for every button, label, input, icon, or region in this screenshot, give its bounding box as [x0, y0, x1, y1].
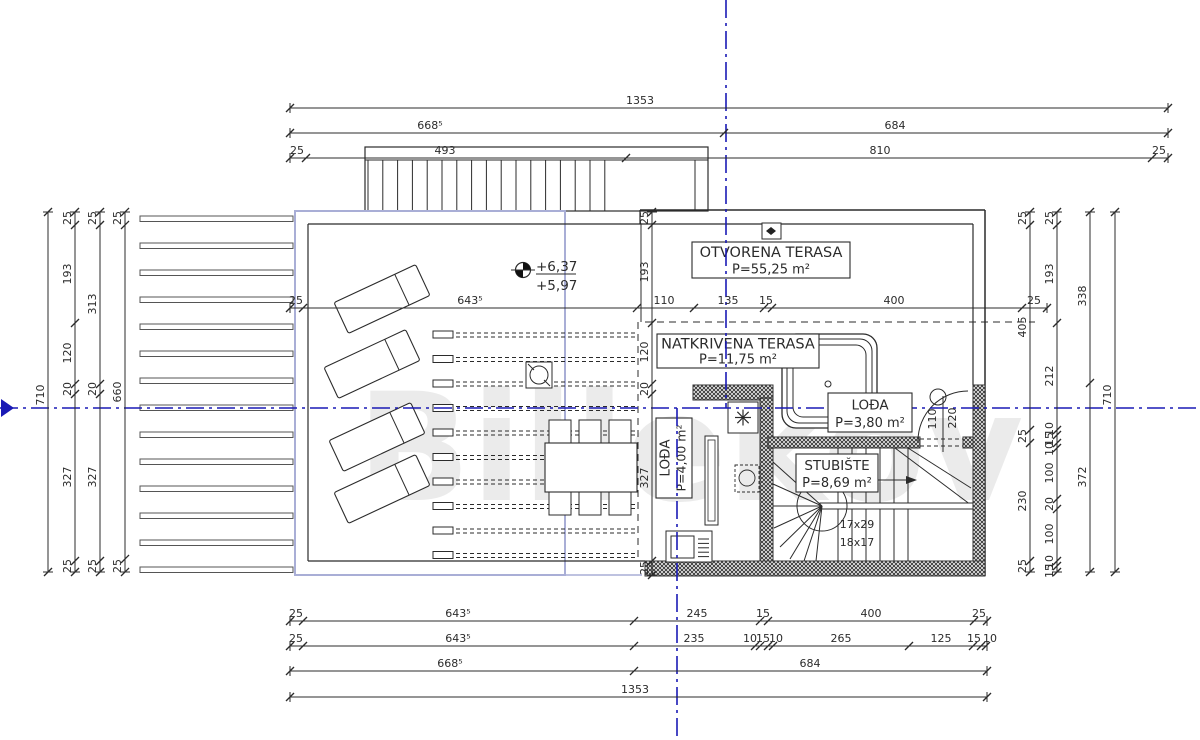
dim-label: 25: [972, 607, 986, 620]
wall-hatched: [760, 398, 773, 562]
wall-hatched: [963, 437, 973, 448]
dim-label: 193: [638, 262, 651, 283]
deck-row-cap: [433, 552, 453, 559]
dim-label: 10: [769, 632, 783, 645]
dim-label: 405: [1016, 317, 1029, 338]
chair: [609, 420, 631, 444]
dim-label: 338: [1076, 286, 1089, 307]
deck-bar: [140, 270, 293, 276]
dim-label: 25: [638, 211, 651, 225]
deck-row-cap: [433, 380, 453, 387]
dim-label: 212: [1043, 366, 1056, 387]
dim-label: 20: [1043, 497, 1056, 511]
dim-label: 15: [1043, 564, 1056, 578]
dim-label: 25: [289, 632, 303, 645]
deck-bar: [140, 513, 293, 519]
floor-plan-page: Billekov +6,37+5,97 OTVORENA TERASAP=55,…: [0, 0, 1200, 740]
dim-label: 660: [111, 382, 124, 403]
dim-label: 20: [86, 382, 99, 396]
dim-label: 25: [289, 607, 303, 620]
deck-bar: [140, 297, 293, 303]
dim-label: 230: [1016, 491, 1029, 512]
dim-label: 25: [111, 559, 124, 573]
room-name: OTVORENA TERASA: [700, 245, 843, 261]
dim-label: 400: [861, 607, 882, 620]
dim-label: 120: [638, 342, 651, 363]
deck-bar: [140, 486, 293, 492]
dim-label: 110: [654, 294, 675, 307]
dim-label: 313: [86, 294, 99, 315]
dim-label: 25: [111, 211, 124, 225]
dim-label: 643⁵: [445, 632, 470, 645]
dim-label: 810: [870, 144, 891, 157]
deck-bar: [140, 243, 293, 249]
dim-label: 235: [684, 632, 705, 645]
dim-label: 327: [638, 468, 651, 489]
stair-note: 18x17: [840, 536, 875, 549]
chair: [579, 491, 601, 515]
deck-bar: [140, 324, 293, 330]
dim-label: 20: [638, 382, 651, 396]
dim-label: 710: [1101, 385, 1114, 406]
dim-label: 125: [931, 632, 952, 645]
deck-bar: [140, 540, 293, 546]
dim-label: 15: [756, 607, 770, 620]
deck-bar: [140, 432, 293, 438]
chair: [609, 491, 631, 515]
dim-label: 493: [435, 144, 456, 157]
dim-label: 120: [61, 343, 74, 364]
chair: [579, 420, 601, 444]
chair: [549, 420, 571, 444]
stair-rail: [820, 503, 973, 509]
dim-label: 100: [1043, 524, 1056, 545]
deck-row-cap: [433, 331, 453, 338]
dim-label: 193: [1043, 264, 1056, 285]
dim-label: 25: [86, 211, 99, 225]
wall-hatched: [973, 385, 985, 561]
deck-bar: [140, 567, 293, 573]
dim-label: 1353: [626, 94, 654, 107]
room-name: STUBIŠTE: [804, 456, 869, 474]
dim-label: 15: [759, 294, 773, 307]
deck-bar: [140, 216, 293, 222]
dim-label: 668⁵: [417, 119, 442, 132]
lounger: [334, 265, 430, 334]
dim-label: 25: [1043, 211, 1056, 225]
dim-label: 220: [946, 408, 959, 429]
dim-label: 25: [1016, 559, 1029, 573]
deck-row-cap: [433, 503, 453, 510]
level-upper: +6,37: [536, 259, 577, 275]
dim-label: 110: [926, 409, 939, 430]
floor-plan-canvas: Billekov +6,37+5,97 OTVORENA TERASAP=55,…: [0, 0, 1200, 740]
dim-label: 668⁵: [437, 657, 462, 670]
room-area: P=55,25 m²: [732, 262, 810, 277]
lounger-body: [334, 265, 430, 334]
dim-label: 400: [884, 294, 905, 307]
pergola-frame: [365, 147, 708, 211]
dim-label: 15: [756, 632, 770, 645]
deck-row-cap: [433, 429, 453, 436]
dim-label: 245: [687, 607, 708, 620]
dim-label: 1353: [621, 683, 649, 696]
dim-label: 684: [800, 657, 821, 670]
dim-label: 193: [61, 264, 74, 285]
dim-label: 372: [1076, 467, 1089, 488]
room-name: LOĐA: [851, 397, 889, 413]
room-name: NATKRIVENA TERASA: [661, 336, 815, 352]
dim-label: 25: [289, 294, 303, 307]
dim-label: 135: [718, 294, 739, 307]
dim-label: 10: [983, 632, 997, 645]
dim-label: 327: [86, 467, 99, 488]
level-marker-icon: [516, 270, 524, 278]
deck-row-cap: [433, 356, 453, 363]
chair: [549, 491, 571, 515]
dim-label: 643⁵: [457, 294, 482, 307]
dim-label: 265: [831, 632, 852, 645]
room-area: P=11,75 m²: [699, 353, 777, 368]
deck-bar: [140, 351, 293, 357]
dim-label: 20: [61, 382, 74, 396]
room-area: P=3,80 m²: [835, 416, 905, 431]
dim-label: 25: [290, 144, 304, 157]
dim-label: 25: [638, 561, 651, 575]
dim-label: 643⁵: [445, 607, 470, 620]
dim-label: 25: [1152, 144, 1166, 157]
deck-row-cap: [433, 527, 453, 534]
wall-hatched: [768, 437, 920, 448]
dim-label: 25: [61, 559, 74, 573]
stair-note: 17x29: [840, 518, 875, 531]
dim-label: 327: [61, 467, 74, 488]
dim-label: 25: [1016, 429, 1029, 443]
dim-label: 15: [967, 632, 981, 645]
level-marker-icon: [523, 263, 531, 271]
deck-row-cap: [433, 478, 453, 485]
room-area: P=4,00 m²: [674, 424, 689, 491]
glass-panel: [705, 436, 718, 525]
dim-label: 25: [86, 559, 99, 573]
dim-label: 25: [1016, 211, 1029, 225]
deck-bar: [140, 459, 293, 465]
dim-label: 25: [1027, 294, 1041, 307]
level-lower: +5,97: [536, 278, 577, 294]
wall-hatched: [645, 561, 985, 576]
dim-label: 10: [1043, 442, 1056, 456]
deck-row-cap: [433, 454, 453, 461]
dim-label: 710: [34, 385, 47, 406]
room-area: P=8,69 m²: [802, 476, 872, 491]
dim-label: 684: [885, 119, 906, 132]
axis-arrow: [1, 399, 14, 417]
deck-bar: [140, 378, 293, 384]
dim-label: 10: [743, 632, 757, 645]
room-name: LOĐA: [658, 439, 674, 477]
dim-label: 100: [1043, 463, 1056, 484]
dim-label: 25: [61, 211, 74, 225]
dining-table: [545, 443, 637, 492]
